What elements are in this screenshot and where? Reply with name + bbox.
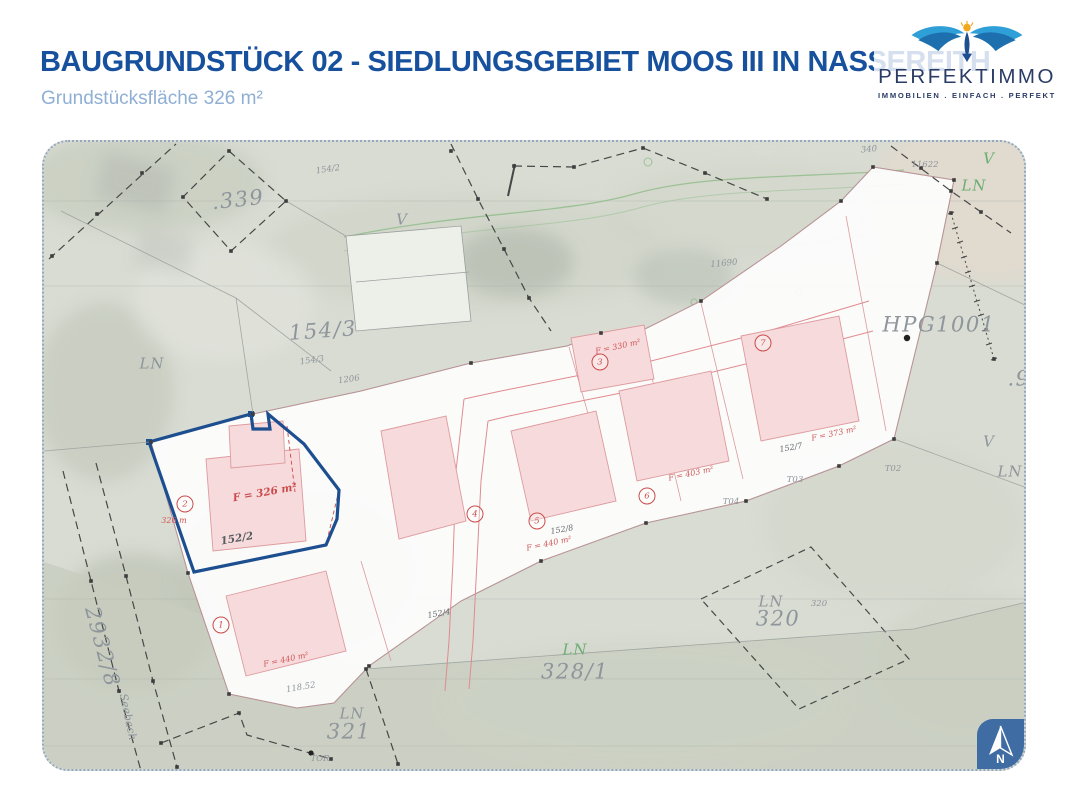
expose-page: BAUGRUNDSTÜCK 02 - SIEDLUNGSGEBIET MOOS …	[0, 0, 1067, 800]
map-label: LN	[961, 179, 986, 194]
map-label: 326 m	[161, 517, 186, 525]
map-label: 328/1	[541, 662, 609, 683]
title-prefix: BAUGRUNDSTÜCK	[40, 46, 304, 78]
plot-number-circle: 5	[529, 513, 546, 530]
map-label: HPG1001	[882, 315, 995, 336]
map-label: 11690	[710, 259, 738, 270]
map-label: LN	[997, 465, 1022, 480]
map-label: 320	[756, 609, 801, 630]
plot-number-circle: 4	[467, 506, 484, 523]
cadastral-map: .339154/2V154/3154/3LN120611690HPG100111…	[42, 140, 1026, 771]
map-label: TOR	[310, 755, 329, 764]
map-label: V	[983, 152, 995, 167]
plot-number-circle: 3	[592, 354, 609, 371]
eagle-icon	[907, 20, 1027, 62]
perfektimmo-logo: PERFEKTIMMO IMMOBILIEN . EINFACH . PERFE…	[874, 20, 1060, 108]
map-label: T03	[787, 476, 804, 485]
logo-brand: PERFEKTIMMO	[874, 65, 1060, 89]
map-label: LN	[562, 643, 587, 658]
north-label: N	[977, 752, 1024, 766]
map-label: 11622	[911, 161, 938, 170]
plot-number-circle: 1	[213, 617, 230, 634]
north-arrow: N	[977, 719, 1024, 769]
map-label: T04	[723, 498, 740, 507]
map-label: LN	[139, 357, 164, 372]
map-label: V	[983, 435, 995, 450]
map-label: 321	[327, 722, 372, 743]
map-label: 340	[861, 145, 878, 155]
logo-tagline: IMMOBILIEN . EINFACH . PERFEKT	[874, 91, 1060, 100]
map-label: .9	[1007, 369, 1026, 390]
plot-number-circle: 2	[177, 496, 194, 513]
page-title: BAUGRUNDSTÜCK 02 - SIEDLUNGSGEBIET MOOS …	[40, 46, 990, 79]
map-label: 154/3	[288, 318, 357, 344]
map-label: T02	[885, 465, 902, 474]
map-label: V	[396, 213, 408, 228]
map-label: 320	[811, 600, 827, 609]
plot-number-circle: 6	[639, 488, 656, 505]
plot-area-subtitle: Grundstücksfläche 326 m²	[41, 88, 263, 110]
plot-number-circle: 7	[755, 335, 772, 352]
map-graphic	[44, 142, 1026, 771]
map-label: .339	[211, 187, 266, 213]
